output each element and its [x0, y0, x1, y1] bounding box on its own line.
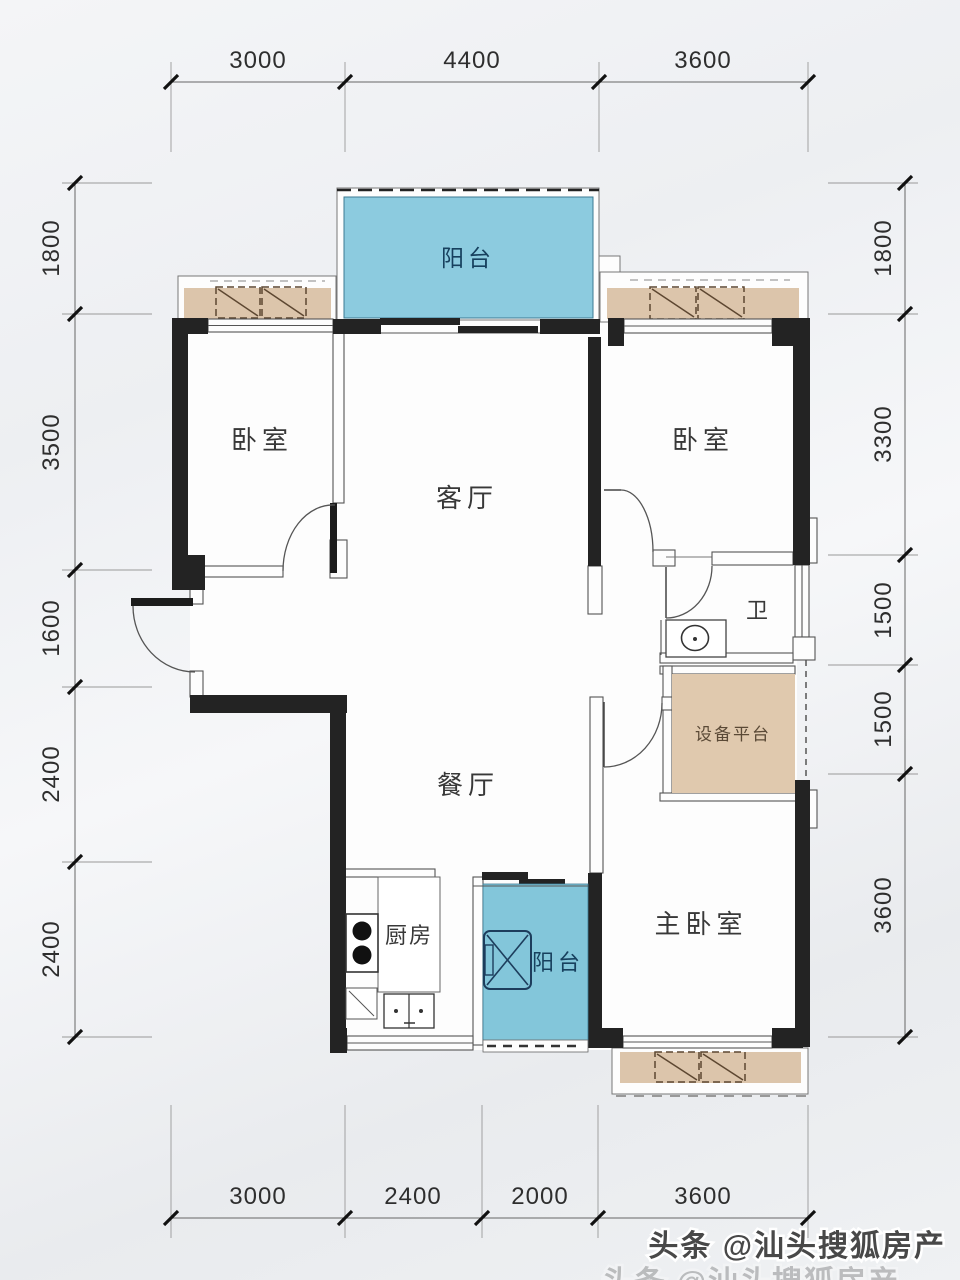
room-label-living-room: 客厅	[436, 483, 498, 513]
dim-bottom-3: 2000	[511, 1183, 568, 1210]
room-label-bedroom-right: 卧室	[672, 425, 734, 455]
dim-left-3: 1600	[38, 599, 65, 656]
dim-top-1: 3000	[229, 47, 286, 74]
washbasin-icon	[666, 620, 726, 657]
dimension-bottom: 3000 2400 2000 3600	[164, 1105, 815, 1238]
bay-window-top-left	[178, 276, 336, 322]
room-label-master-bedroom: 主卧室	[654, 909, 747, 939]
room-label-kitchen: 厨房	[385, 923, 433, 948]
kitchen-corner-cabinet	[346, 988, 377, 1019]
sliding-door-top	[380, 318, 460, 325]
sliding-door-bottom	[482, 872, 528, 880]
dim-left-1: 1800	[38, 219, 65, 276]
watermark-faint: 头条 @汕头搜狐房产	[602, 1266, 900, 1280]
dimension-top: 3000 4400 3600	[164, 47, 815, 152]
dim-bottom-4: 3600	[674, 1183, 731, 1210]
room-label-bathroom: 卫	[746, 598, 770, 623]
balcony-railing	[483, 1040, 588, 1052]
dimension-right: 1800 3300 1500 1500 3600	[828, 176, 918, 1044]
dim-right-1: 1800	[870, 219, 897, 276]
room-label-balcony-bottom: 阳台	[532, 950, 584, 975]
stove-icon	[346, 914, 378, 972]
dim-bottom-1: 3000	[229, 1183, 286, 1210]
dim-right-4: 1500	[870, 690, 897, 747]
dimension-left: 1800 3500 1600 2400 2400	[38, 176, 152, 1044]
kitchen-sink-icon	[384, 994, 434, 1028]
dim-right-3: 1500	[870, 581, 897, 638]
dim-left-4: 2400	[38, 745, 65, 802]
room-label-bedroom-left: 卧室	[231, 425, 293, 455]
bay-window-top-right	[600, 272, 808, 322]
dim-right-2: 3300	[870, 405, 897, 462]
dim-right-5: 3600	[870, 876, 897, 933]
dim-bottom-2: 2400	[384, 1183, 441, 1210]
dim-top-3: 3600	[674, 47, 731, 74]
room-label-dining-room: 餐厅	[437, 770, 499, 800]
floor-plan-canvas: 阳台 卧室 客厅 卧室 卫 设备平台 餐厅 厨房 阳台 主卧室 3000 440…	[0, 0, 960, 1280]
watermark: 头条 @汕头搜狐房产	[648, 1230, 946, 1263]
floor-plan-page: 阳台 卧室 客厅 卧室 卫 设备平台 餐厅 厨房 阳台 主卧室 3000 440…	[0, 0, 960, 1280]
dim-top-2: 4400	[443, 47, 500, 74]
dim-left-2: 3500	[38, 413, 65, 470]
dim-left-5: 2400	[38, 920, 65, 977]
bay-window-bottom	[612, 1048, 808, 1096]
entry-door-arc	[131, 598, 195, 672]
room-label-balcony-top: 阳台	[441, 245, 495, 271]
room-label-equipment-platform: 设备平台	[695, 725, 771, 744]
